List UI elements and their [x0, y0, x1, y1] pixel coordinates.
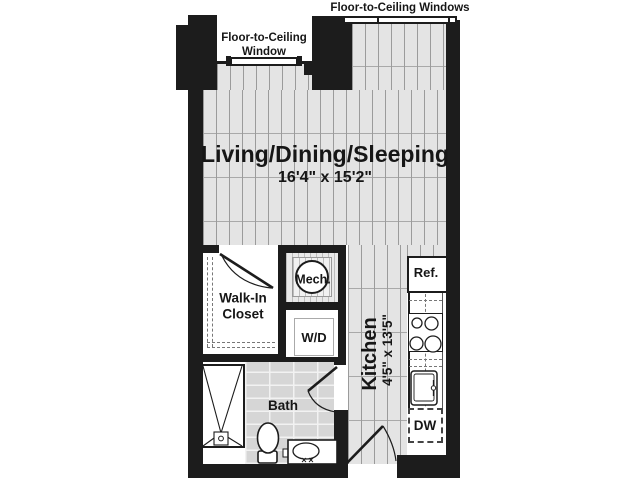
counter-dash-1 — [409, 300, 442, 301]
closet-shelf-dash-bottom-outer — [207, 342, 275, 343]
floorplan: Floor-to-Ceiling Windows Floor-to-Ceilin… — [0, 0, 640, 480]
label-closet-line1: Walk-In — [219, 291, 267, 307]
wall-center-pillar — [312, 16, 352, 90]
label-dishwasher: DW — [414, 418, 437, 434]
window-top-divider-2 — [448, 16, 450, 24]
wall-pillar-notch — [304, 64, 312, 75]
label-living-name: Living/Dining/Sleeping — [201, 140, 449, 168]
window-top-divider-1 — [377, 16, 379, 24]
wall-bath-right-lower — [334, 410, 348, 466]
label-kitchen-dimensions: 4'5" x 13'5" — [380, 314, 396, 386]
counter-dash-2 — [409, 359, 442, 360]
closet-shelf-dash-bottom-inner — [207, 347, 275, 348]
wall-bottom-right-block — [397, 455, 460, 478]
counter-dash-3 — [409, 366, 442, 367]
label-window-left-line2: Window — [221, 45, 307, 59]
floor-ref-sliver — [407, 245, 446, 256]
label-mech: Mech. — [295, 272, 330, 287]
wall-left-pilaster — [176, 25, 188, 90]
wall-right — [446, 20, 460, 462]
label-closet-line2: Closet — [219, 307, 267, 323]
label-kitchen-name: Kitchen — [358, 317, 382, 390]
closet-shelf-dash-left-outer — [207, 257, 208, 347]
label-refrigerator: Ref. — [414, 265, 439, 281]
label-walk-in-closet: Walk-In Closet — [219, 291, 267, 324]
label-bath: Bath — [268, 398, 298, 414]
shower-stall — [201, 364, 245, 448]
wall-bottom-left — [188, 464, 348, 478]
wall-bath-top — [188, 354, 278, 362]
label-window-left-line1: Floor-to-Ceiling — [221, 31, 307, 45]
wall-closet-top — [188, 245, 219, 253]
wall-left-corner-block — [188, 15, 217, 90]
label-window-left: Floor-to-Ceiling Window — [221, 31, 307, 59]
closet-shelf-dash-left-inner — [212, 257, 213, 347]
cooktop — [408, 313, 443, 352]
window-top-right — [343, 16, 457, 24]
label-laundry: W/D — [301, 330, 326, 346]
label-windows-top: Floor-to-Ceiling Windows — [330, 1, 469, 15]
label-living-dimensions: 16'4" x 15'2" — [278, 168, 372, 188]
floor-left-window-bay — [217, 64, 312, 90]
